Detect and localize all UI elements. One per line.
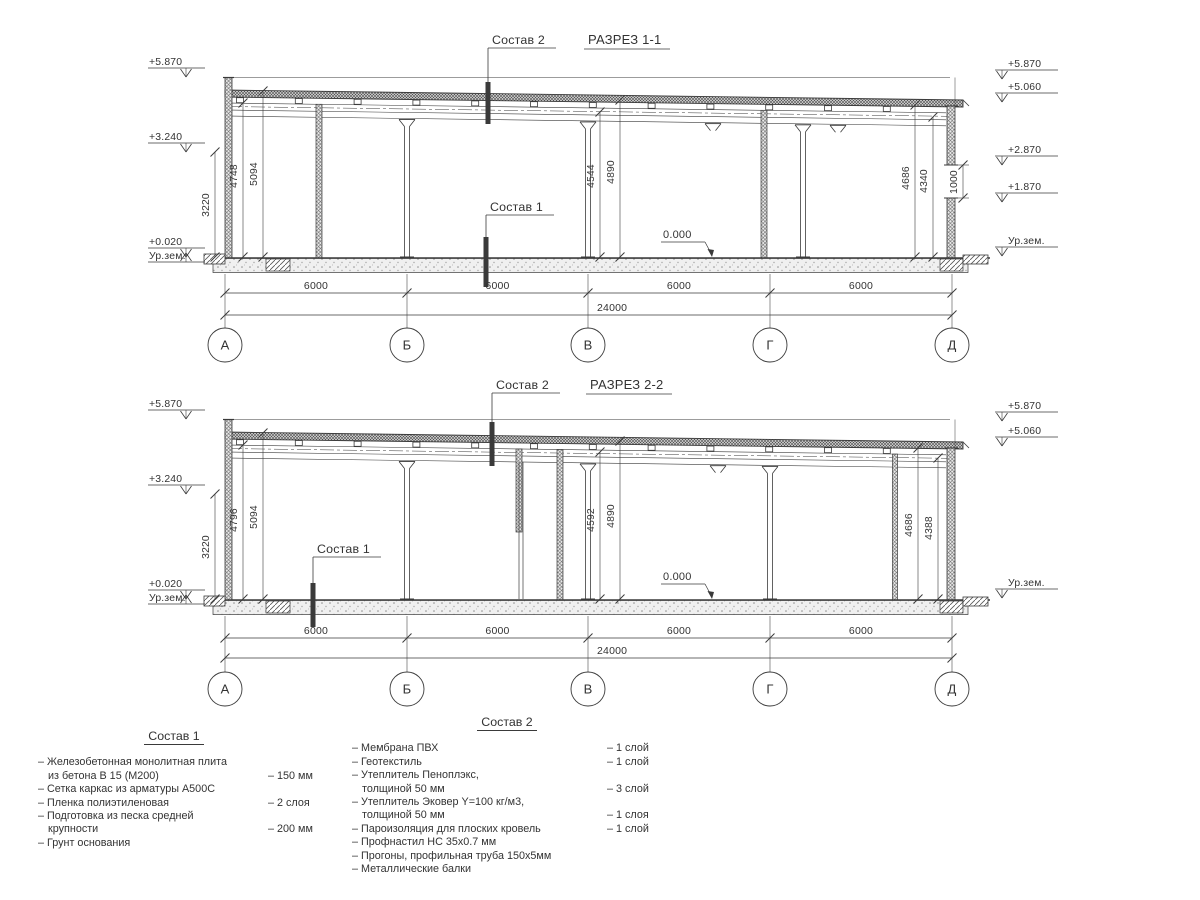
legend-item-line: – Пароизоляция для плоских кровель <box>352 823 607 836</box>
dim-text: 6000 <box>667 625 691 637</box>
level-arrow <box>997 248 1003 256</box>
legend-item: – Профнастил НС 35х0.7 мм <box>352 836 662 849</box>
dim-text: 4686 <box>904 513 915 537</box>
interior-wall <box>893 454 898 600</box>
dim-text: 6000 <box>849 280 873 292</box>
dim-text: 6000 <box>485 280 509 292</box>
purlin <box>707 446 714 451</box>
level-arrow <box>186 69 192 77</box>
purlin <box>766 447 773 452</box>
dim-text: 4592 <box>586 508 597 532</box>
roof-chord-line <box>232 458 946 468</box>
purlin <box>883 448 890 453</box>
axis-letter: Г <box>766 682 773 697</box>
legend-item-line: толщиной 50 мм <box>352 809 607 822</box>
section-title: РАЗРЕЗ 1-1 <box>588 32 662 47</box>
callout-bar <box>486 82 491 124</box>
column-capital <box>773 466 779 473</box>
legend-item-value: – 1 слоя <box>607 809 649 822</box>
callout-label: Состав 1 <box>317 542 370 556</box>
level-arrow <box>186 595 192 603</box>
wall-right <box>947 448 955 600</box>
legend-1-title: Состав 1 <box>38 730 310 743</box>
legend-item: – Мембрана ПВХ– 1 слой <box>352 742 662 755</box>
column-capital <box>580 122 586 129</box>
dim-text: 3220 <box>201 535 212 559</box>
level-arrow <box>1002 194 1008 202</box>
legend-item: – Пленка полиэтиленовая– 2 слоя <box>38 797 310 810</box>
axis-letter: В <box>584 338 593 353</box>
legend-item-value: – 200 мм <box>268 823 313 836</box>
callout-bar <box>311 583 316 627</box>
dim-text: 4686 <box>901 166 912 190</box>
footing-block-left <box>266 259 290 271</box>
axis-letter: Б <box>403 338 412 353</box>
dim-text: 4544 <box>586 164 597 188</box>
level-arrow <box>186 144 192 152</box>
level-arrow <box>186 591 192 599</box>
legend-item-line: – Утеплитель Пеноплэкс, <box>352 769 607 782</box>
dim-text: 1000 <box>949 170 960 194</box>
legend-item-line: – Прогоны, профильная труба 150х5мм <box>352 850 607 863</box>
legend-item-line: – Железобетонная монолитная плита <box>38 756 268 769</box>
level-arrow <box>997 590 1003 598</box>
roof-edge-flashing <box>963 100 969 106</box>
level-arrow <box>1002 94 1008 102</box>
footing-block-left <box>266 601 290 613</box>
column-capital <box>721 466 727 473</box>
dim-text: 6000 <box>849 625 873 637</box>
level-text: +3.240 <box>149 132 182 143</box>
purlin <box>589 444 596 449</box>
level-arrow <box>1002 71 1008 79</box>
legend-item-line: – Мембрана ПВХ <box>352 742 607 755</box>
legend-item: – Утеплитель Пеноплэкс,толщиной 50 мм– 3… <box>352 769 662 796</box>
level-arrow <box>997 438 1003 446</box>
legend-item: – Сетка каркас из арматуры А500С <box>38 783 310 796</box>
purlin <box>237 98 244 103</box>
level-text: +5.060 <box>1008 426 1041 437</box>
level-arrow <box>1002 248 1008 256</box>
blueprint-page: { "drawing_type": "building-sections", "… <box>0 0 1200 900</box>
legend-item-line: – Сетка каркас из арматуры А500С <box>38 783 268 796</box>
floor-slab <box>213 259 968 273</box>
column-capital <box>806 125 812 132</box>
purlin <box>354 441 361 446</box>
level-text: +5.870 <box>1008 401 1041 412</box>
legend-item-value: – 3 слой <box>607 783 649 796</box>
legend-2-title-text: Состав 2 <box>477 715 536 731</box>
purlin <box>589 102 596 107</box>
level-text: +5.870 <box>149 399 182 410</box>
legend-item-line: из бетона В 15 (М200) <box>38 770 268 783</box>
level-text: +3.240 <box>149 474 182 485</box>
legend-1-items: – Железобетонная монолитная плитаиз бето… <box>38 756 310 850</box>
sections-drawing-canvas: Состав 2Состав 10.000РАЗРЕЗ 1-1+5.870+3.… <box>0 0 1200 716</box>
level-text: +1.870 <box>1008 182 1041 193</box>
level-arrow <box>181 144 187 152</box>
column-capital <box>841 125 847 132</box>
level-text: +2.870 <box>1008 145 1041 156</box>
dim-total-text: 24000 <box>597 645 627 657</box>
level-arrow <box>997 71 1003 79</box>
dim-text: 4388 <box>924 516 935 540</box>
legend-item-line: – Металлические балки <box>352 863 607 876</box>
dim-text: 4796 <box>229 508 240 532</box>
purlin <box>648 445 655 450</box>
dim-text: 4890 <box>606 504 617 528</box>
legend-item-text: – Утеплитель Пеноплэкс,толщиной 50 мм <box>352 769 607 796</box>
dim-text: 4890 <box>606 160 617 184</box>
column-capital <box>716 124 722 131</box>
footing-left-step <box>204 254 225 264</box>
purlin <box>472 443 479 448</box>
axis-letter: Д <box>947 682 956 697</box>
purlin <box>648 103 655 108</box>
legend-1-title-text: Состав 1 <box>144 729 203 745</box>
dim-text: 4340 <box>919 169 930 193</box>
legend-item: – Прогоны, профильная труба 150х5мм <box>352 850 662 863</box>
column-capital <box>591 464 597 471</box>
dim-text: 6000 <box>485 625 509 637</box>
level-text: Ур.зем. <box>149 251 186 262</box>
section-title: РАЗРЕЗ 2-2 <box>590 377 664 392</box>
purlin <box>766 105 773 110</box>
legend-item-value: – 150 мм <box>268 770 313 783</box>
level-text: +5.870 <box>149 57 182 68</box>
legend-item: – Утеплитель Эковер Y=100 кг/м3,толщиной… <box>352 796 662 823</box>
legend-item-line: – Пленка полиэтиленовая <box>38 797 268 810</box>
column-capital <box>710 466 716 473</box>
level-arrow <box>1002 157 1008 165</box>
purlin <box>825 106 832 111</box>
level-text: Ур.зем. <box>149 593 186 604</box>
axis-letter: А <box>221 682 230 697</box>
legend-item: – Металлические балки <box>352 863 662 876</box>
legend-item-text: – Железобетонная монолитная плитаиз бето… <box>38 756 268 783</box>
column-capital <box>410 119 416 126</box>
legend-item: – Железобетонная монолитная плитаиз бето… <box>38 756 310 783</box>
purlin <box>295 441 302 446</box>
legend-item-value: – 2 слоя <box>268 797 310 810</box>
level-arrow <box>997 194 1003 202</box>
level-arrow <box>1002 590 1008 598</box>
level-arrow <box>186 249 192 257</box>
dim-text: 5094 <box>249 162 260 186</box>
legend-item-line: – Профнастил НС 35х0.7 мм <box>352 836 607 849</box>
level-arrow <box>997 413 1003 421</box>
roof-chord-line <box>232 116 946 126</box>
column-capital <box>795 125 801 132</box>
level-text: Ур.зем. <box>1008 578 1045 589</box>
purlin <box>354 99 361 104</box>
column-capital <box>762 466 768 473</box>
column-capital <box>410 461 416 468</box>
level-text: +5.060 <box>1008 82 1041 93</box>
axis-letter: Б <box>403 682 412 697</box>
legend-item-text: – Пленка полиэтиленовая <box>38 797 268 810</box>
legend-item-text: – Утеплитель Эковер Y=100 кг/м3,толщиной… <box>352 796 607 823</box>
callout-bar <box>490 422 495 466</box>
level-arrow <box>186 411 192 419</box>
axis-letter: В <box>584 682 593 697</box>
interior-wall <box>761 110 767 258</box>
legend-item-value: – 1 слой <box>607 756 649 769</box>
legend-item-text: – Пароизоляция для плоских кровель <box>352 823 607 836</box>
level-text: +0.020 <box>149 237 182 248</box>
legend-item-text: – Геотекстиль <box>352 756 607 769</box>
level-arrow <box>181 411 187 419</box>
level-arrow <box>186 486 192 494</box>
level-arrow <box>1002 413 1008 421</box>
axis-letter: Д <box>947 338 956 353</box>
callout-label: Состав 1 <box>490 200 543 214</box>
legend-item-text: – Металлические балки <box>352 863 607 876</box>
dim-text: 3220 <box>201 193 212 217</box>
level-arrow <box>997 157 1003 165</box>
callout-label: Состав 2 <box>492 33 545 47</box>
dim-total-text: 24000 <box>597 302 627 314</box>
purlin <box>707 104 714 109</box>
dim-text: 6000 <box>304 625 328 637</box>
interior-wall <box>316 104 322 258</box>
level-arrow <box>181 486 187 494</box>
footing-block-right <box>940 259 963 271</box>
dim-text: 4748 <box>229 164 240 188</box>
legend-item: – Пароизоляция для плоских кровель– 1 сл… <box>352 823 662 836</box>
callout-label: Состав 2 <box>496 378 549 392</box>
purlin <box>472 101 479 106</box>
legend-item-line: – Геотекстиль <box>352 756 607 769</box>
column-capital <box>399 119 405 126</box>
interior-wall <box>557 450 563 600</box>
legend-item-text: – Прогоны, профильная труба 150х5мм <box>352 850 607 863</box>
purlin <box>237 440 244 445</box>
axis-letter: Г <box>766 338 773 353</box>
apron-right <box>963 255 988 264</box>
purlin <box>413 100 420 105</box>
footing-block-right <box>940 601 963 613</box>
column-capital <box>580 464 586 471</box>
purlin <box>413 442 420 447</box>
column-capital <box>399 461 405 468</box>
purlin <box>531 102 538 107</box>
zero-level-arrowhead <box>708 591 715 599</box>
footing-left-step <box>204 596 225 606</box>
legend-item-line: – Утеплитель Эковер Y=100 кг/м3, <box>352 796 607 809</box>
purlin <box>295 99 302 104</box>
level-text: +5.870 <box>1008 59 1041 70</box>
legend-item-line: толщиной 50 мм <box>352 783 607 796</box>
level-text: Ур.зем. <box>1008 236 1045 247</box>
legend-item-text: – Сетка каркас из арматуры А500С <box>38 783 268 796</box>
floor-slab <box>213 601 968 615</box>
zero-level-text: 0.000 <box>663 229 692 241</box>
legend-item: – Подготовка из песка среднейкрупности– … <box>38 810 310 837</box>
section-1: Состав 2Состав 10.000РАЗРЕЗ 1-1+5.870+3.… <box>148 32 1058 362</box>
legend-item: – Геотекстиль– 1 слой <box>352 756 662 769</box>
column-capital <box>830 125 836 132</box>
legend-item-value: – 1 слой <box>607 742 649 755</box>
wall-right-upper <box>947 106 955 165</box>
apron-right <box>963 597 988 606</box>
legend-item-text: – Профнастил НС 35х0.7 мм <box>352 836 607 849</box>
level-text: +0.020 <box>149 579 182 590</box>
zero-level-text: 0.000 <box>663 571 692 583</box>
legend-item: – Грунт основания <box>38 837 310 850</box>
level-arrow <box>997 94 1003 102</box>
section-2: Состав 2Состав 10.000РАЗРЕЗ 2-2+5.870+3.… <box>148 377 1058 706</box>
legend-item-text: – Мембрана ПВХ <box>352 742 607 755</box>
level-arrow <box>1002 438 1008 446</box>
dim-text: 5094 <box>249 505 260 529</box>
legend-item-value: – 1 слой <box>607 823 649 836</box>
legend-item-line: – Грунт основания <box>38 837 268 850</box>
level-arrow <box>186 253 192 261</box>
legend-item-line: крупности <box>38 823 268 836</box>
legend-item-line: – Подготовка из песка средней <box>38 810 268 823</box>
purlin <box>883 106 890 111</box>
dim-text: 6000 <box>667 280 691 292</box>
axis-letter: А <box>221 338 230 353</box>
column-capital <box>705 124 711 131</box>
wall-right-lower <box>947 198 955 258</box>
level-arrow <box>181 69 187 77</box>
legend-sostav-1: Состав 1 – Железобетонная монолитная пли… <box>38 730 310 850</box>
column-capital <box>591 122 597 129</box>
purlin <box>531 444 538 449</box>
zero-level-arrowhead <box>708 249 715 257</box>
purlin <box>825 448 832 453</box>
legend-2-title: Состав 2 <box>352 716 662 729</box>
dim-text: 6000 <box>304 280 328 292</box>
roof-edge-flashing <box>963 442 969 448</box>
legend-2-items: – Мембрана ПВХ– 1 слой– Геотекстиль– 1 с… <box>352 742 662 876</box>
legend-sostav-2: Состав 2 – Мембрана ПВХ– 1 слой– Геотекс… <box>352 716 662 876</box>
legend-item-text: – Подготовка из песка среднейкрупности <box>38 810 268 837</box>
legend-item-text: – Грунт основания <box>38 837 268 850</box>
